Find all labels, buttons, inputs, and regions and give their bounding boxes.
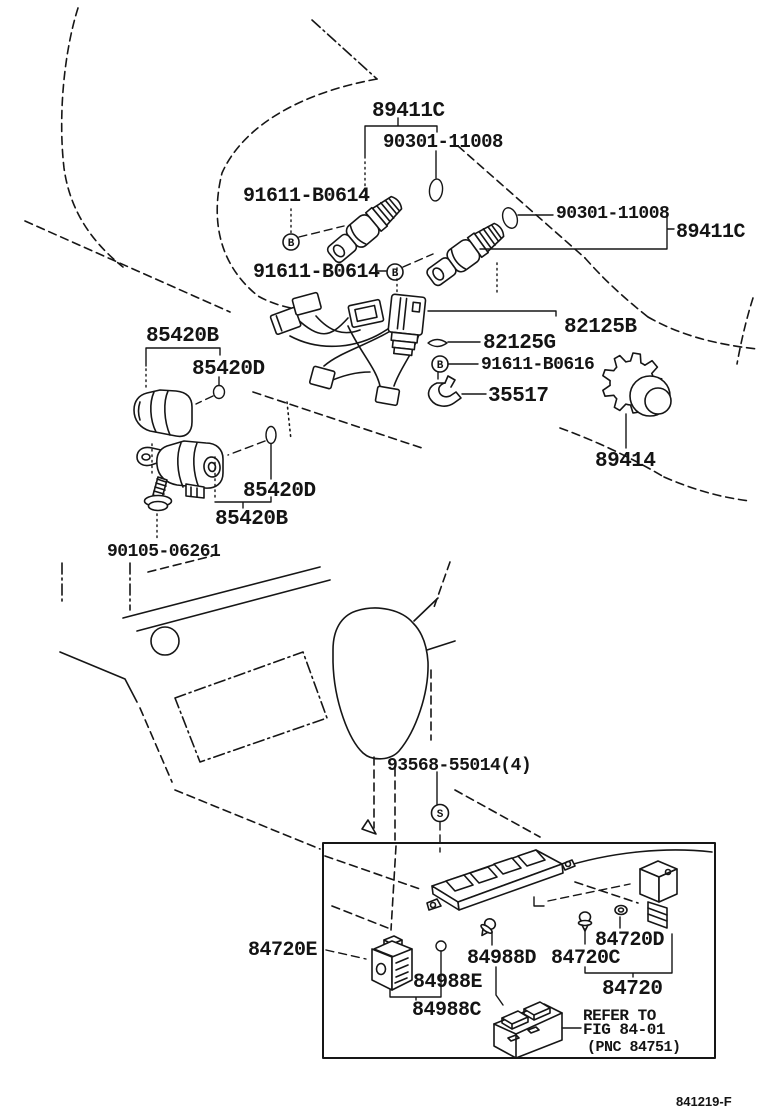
label-91611-b0616: 91611-B0616 — [481, 355, 594, 375]
switch-84988e-part — [372, 936, 412, 990]
switch-84720d-part — [640, 861, 677, 928]
label-89411c-top: 89411C — [372, 100, 446, 123]
label-90105: 90105-06261 — [107, 542, 221, 562]
drawing-code: 841219-F — [676, 1094, 732, 1109]
symbol-s: S — [437, 809, 444, 821]
symbol-b-2: B — [392, 268, 399, 280]
label-84988c: 84988C — [412, 999, 482, 1022]
shift-knob — [333, 608, 428, 759]
harness-connectors — [270, 292, 426, 405]
label-89414: 89414 — [595, 450, 656, 473]
gear-89414 — [603, 353, 671, 416]
label-82125g: 82125G — [483, 332, 556, 355]
label-90301-right: 90301-11008 — [556, 204, 669, 224]
symbol-b-1: B — [288, 238, 295, 250]
label-35517: 35517 — [488, 385, 549, 408]
label-84720d: 84720D — [595, 929, 665, 952]
harness-main-connector — [386, 294, 426, 356]
label-84720: 84720 — [602, 978, 663, 1001]
screw-84720c-part — [579, 912, 592, 931]
label-85420d-upper: 85420D — [192, 358, 265, 381]
console-outline — [60, 556, 712, 930]
label-84988e: 84988E — [413, 971, 483, 994]
clamp-35517 — [429, 376, 461, 406]
actuator-85420b-upper — [134, 390, 192, 436]
parts-diagram-page: B B B S 89411C 90301-11008 91611-B0614 9… — [0, 0, 760, 1112]
callout-lines — [146, 118, 674, 1028]
label-89411c-right: 89411C — [676, 221, 746, 244]
sensor-89411c-right — [423, 218, 508, 290]
symbol-b-3: B — [437, 360, 444, 372]
label-93568: 93568-55014(4) — [387, 756, 531, 776]
screw-84988d-part — [477, 916, 499, 939]
label-91611-b0614-a: 91611-B0614 — [243, 185, 370, 208]
switch-panel-bank — [427, 850, 575, 910]
label-85420b-lower: 85420B — [215, 508, 289, 531]
label-91611-b0614-b: 91611-B0614 — [253, 261, 380, 284]
grommet-84720d-part — [615, 906, 627, 915]
switch-refer-part — [494, 1002, 562, 1058]
label-90301-top: 90301-11008 — [383, 131, 503, 153]
parts-diagram: B B B S 89411C 90301-11008 91611-B0614 9… — [0, 0, 760, 1112]
harness-82125b — [270, 292, 426, 405]
engine-compartment-outline — [25, 8, 757, 501]
label-refer-line3: (PNC 84751) — [587, 1039, 681, 1056]
label-85420b-upper: 85420B — [146, 325, 220, 348]
label-82125b: 82125B — [564, 316, 638, 339]
label-84988d: 84988D — [467, 947, 537, 970]
actuator-85420b-lower — [137, 441, 223, 498]
label-refer-line2: FIG 84-01 — [583, 1021, 665, 1039]
label-84720e: 84720E — [248, 939, 318, 962]
label-85420d-lower: 85420D — [243, 480, 316, 503]
